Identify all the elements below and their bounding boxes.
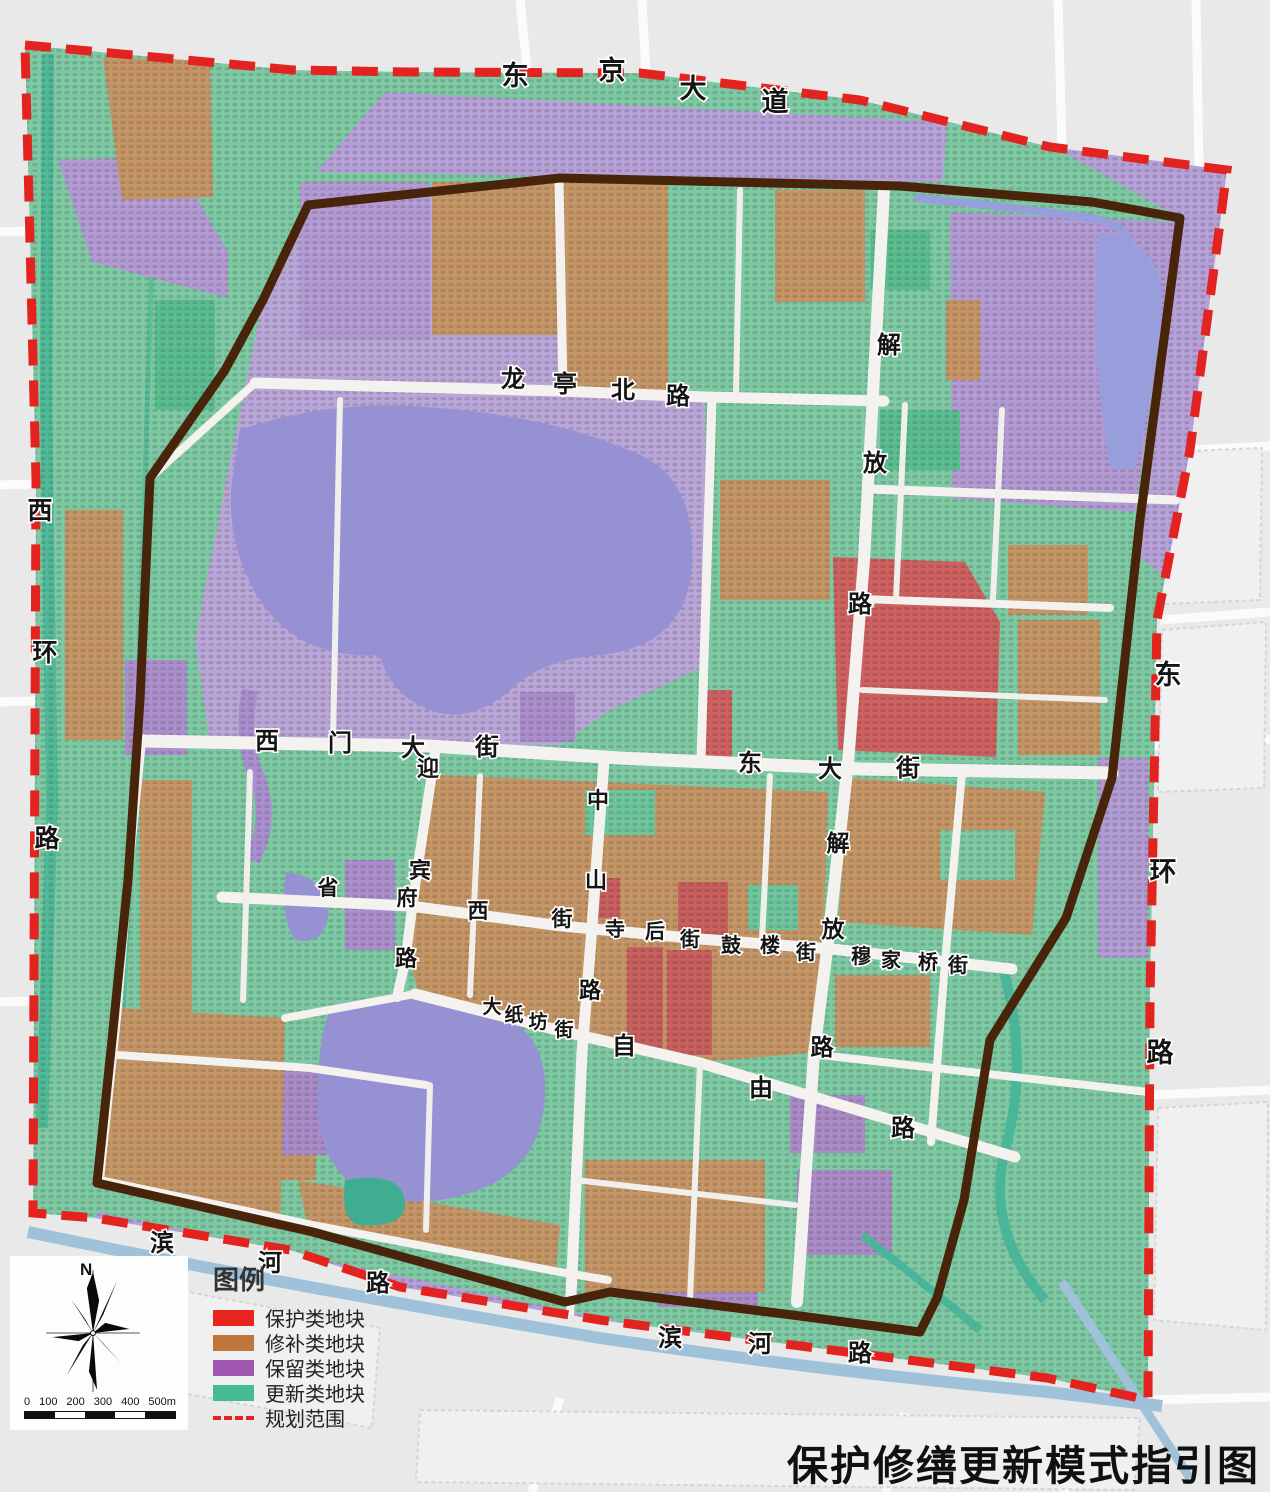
boundary-dash-swatch — [213, 1416, 254, 1420]
legend-item: 更新类地块 — [213, 1380, 365, 1405]
legend-item-boundary: 规划范围 — [213, 1405, 365, 1430]
map-title: 保护修缮更新模式指引图 — [787, 1432, 1260, 1492]
street-label-char: 街 — [474, 733, 499, 761]
legend: 图例 保护类地块修补类地块保留类地块更新类地块 规划范围 — [213, 1260, 365, 1430]
street-label-char: 路 — [1147, 1037, 1175, 1068]
scale-tick: 100 — [39, 1396, 57, 1408]
street-label-char: 宾 — [409, 858, 431, 883]
street-label-char: 街 — [895, 754, 920, 782]
street-label-char: 路 — [366, 1269, 391, 1297]
legend-color-swatch — [213, 1310, 254, 1326]
street-label-char: 省 — [317, 876, 339, 900]
street-label-char: 环 — [1150, 857, 1177, 887]
scale-tick: 300 — [94, 1396, 112, 1408]
street-label-char: 门 — [328, 729, 352, 757]
street-label-char: 山 — [585, 868, 607, 893]
street-label-char: 街 — [679, 927, 700, 951]
street-label-char: 滨 — [150, 1229, 174, 1257]
street-label-char: 西 — [255, 729, 279, 755]
street-label-char: 路 — [848, 1339, 873, 1367]
street-label-char: 滨 — [658, 1324, 682, 1352]
legend-item: 修补类地块 — [213, 1330, 365, 1355]
street-label-char: 西 — [468, 899, 489, 923]
street-label-char: 路 — [666, 382, 691, 410]
legend-color-swatch — [213, 1360, 254, 1376]
scale-tick: 400 — [121, 1396, 139, 1408]
street-label-char: 街 — [947, 953, 968, 977]
street-label-char: 东 — [1155, 659, 1182, 690]
scale-tick: 0 — [24, 1396, 30, 1408]
street-label-char: 街 — [553, 1018, 573, 1041]
street-label-char: 环 — [32, 640, 57, 667]
scale-tick: 200 — [66, 1396, 84, 1408]
street-label-char: 大 — [680, 74, 707, 104]
street-label-char: 东 — [502, 60, 529, 91]
legend-item: 保护类地块 — [213, 1305, 365, 1330]
street-label-char: 路 — [579, 978, 602, 1003]
street-label-char: 路 — [848, 590, 873, 618]
compass-panel: N 0100200300400500m — [10, 1256, 188, 1430]
street-label-char: 楼 — [760, 934, 780, 957]
street-label-char: 西 — [27, 498, 52, 525]
street-label-char: 路 — [811, 1034, 835, 1060]
street-label-char: 迎 — [417, 756, 439, 781]
street-label-char: 坊 — [528, 1010, 547, 1033]
street-label-char: 自 — [612, 1032, 636, 1060]
street-label-char: 放 — [862, 449, 888, 477]
street-label-char: 大 — [482, 995, 501, 1018]
street-label-char: 路 — [395, 946, 418, 971]
street-label-char: 鼓 — [721, 933, 742, 957]
street-label-char: 中 — [587, 788, 609, 813]
street-label-char: 由 — [749, 1075, 773, 1102]
street-label-char: 道 — [762, 86, 789, 117]
street-label-char: 纸 — [504, 1003, 523, 1026]
legend-item-label: 规划范围 — [265, 1403, 345, 1432]
street-label-char: 放 — [821, 916, 846, 942]
scale-strip — [24, 1411, 176, 1419]
street-label-char: 寺 — [605, 917, 625, 941]
scale-bar: 0100200300400500m — [24, 1396, 176, 1419]
street-label-char: 家 — [881, 948, 902, 972]
scale-tick-labels: 0100200300400500m — [24, 1396, 176, 1408]
street-label-char: 路 — [34, 825, 60, 853]
street-label-char: 东 — [738, 749, 762, 777]
scale-tick: 500m — [148, 1396, 176, 1408]
street-label-char: 解 — [827, 830, 850, 856]
legend-title: 图例 — [213, 1260, 365, 1297]
street-label-char: 路 — [891, 1114, 916, 1142]
street-label-char: 街 — [795, 940, 816, 964]
planning-map-page: 东京大道西环路东环路龙亭北路解放路解放路西门大街东大街迎宾路中山路省府西街寺后街… — [0, 0, 1270, 1492]
street-label-char: 府 — [397, 886, 418, 910]
street-label-char: 亭 — [553, 370, 577, 398]
legend-color-swatch — [213, 1335, 254, 1351]
compass-rose-icon — [38, 1270, 148, 1392]
street-label-char: 街 — [551, 907, 573, 931]
street-label-char: 北 — [611, 377, 635, 404]
street-label-char: 解 — [877, 331, 901, 359]
street-label-char: 穆 — [851, 944, 871, 968]
street-label-char: 龙 — [501, 366, 525, 393]
street-label-char: 河 — [748, 1331, 772, 1358]
street-label-char: 京 — [599, 55, 626, 86]
legend-item: 保留类地块 — [213, 1355, 365, 1380]
street-label-char: 大 — [818, 756, 842, 783]
legend-items: 保护类地块修补类地块保留类地块更新类地块 — [213, 1305, 365, 1405]
legend-color-swatch — [213, 1385, 254, 1401]
map-canvas: 东京大道西环路东环路龙亭北路解放路解放路西门大街东大街迎宾路中山路省府西街寺后街… — [0, 0, 1270, 1492]
street-label-char: 后 — [645, 920, 665, 943]
street-label-char: 桥 — [918, 951, 939, 974]
